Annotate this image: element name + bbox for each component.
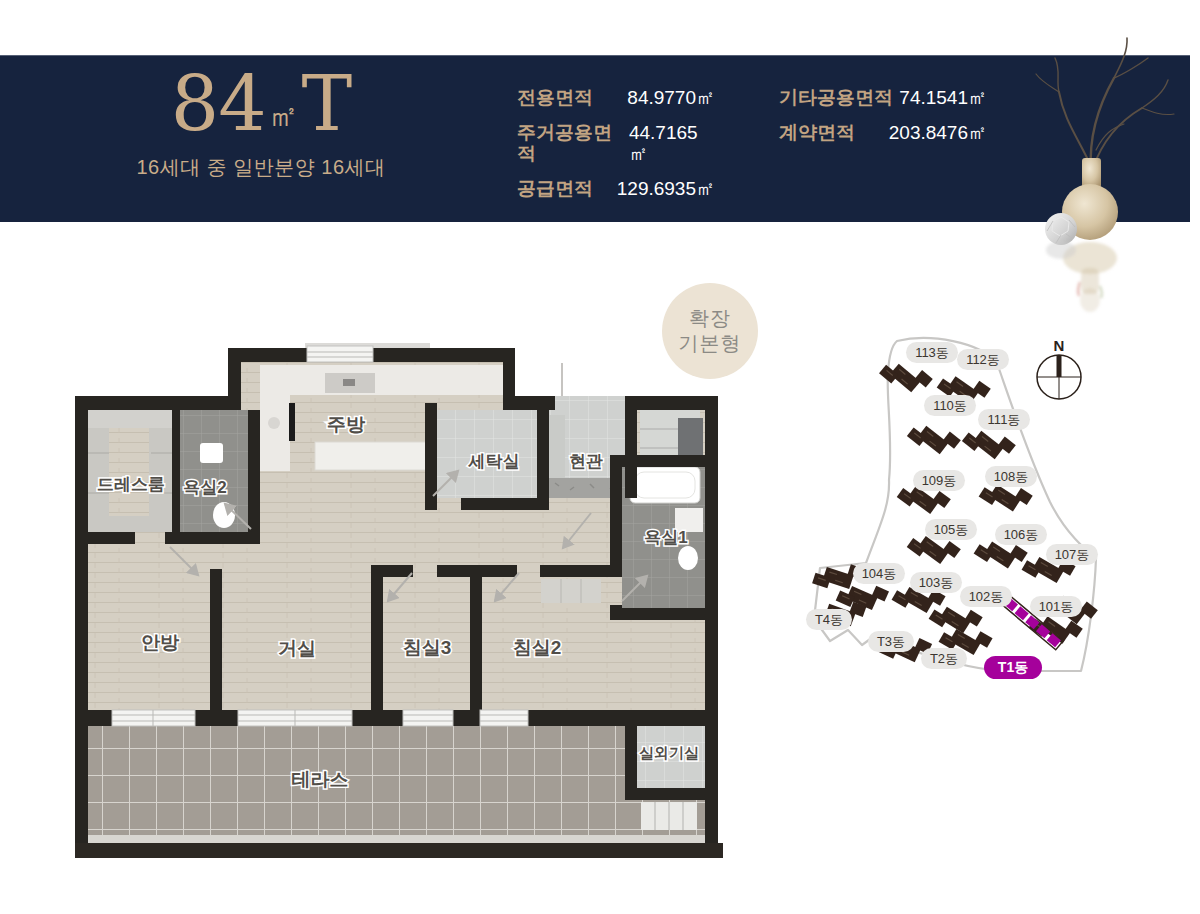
room-label-kitchen: 주방 <box>327 414 366 435</box>
area-row: 공급면적 129.6935㎡ <box>517 178 715 199</box>
svg-text:104동: 104동 <box>862 566 897 581</box>
terrace-floor <box>88 726 705 837</box>
room-label-bath2: 욕실2 <box>183 478 226 497</box>
sink-icon <box>200 443 223 463</box>
building-label: 104동 <box>853 563 905 584</box>
area-row: 주거공용면적 44.7165㎡ <box>517 122 715 164</box>
area-value: 84.9770㎡ <box>627 87 715 108</box>
building-label: 106동 <box>995 524 1047 545</box>
area-table-col1: 전용면적 84.9770㎡ 주거공용면적 44.7165㎡ 공급면적 129.6… <box>517 87 715 199</box>
room-label-living-room: 거실 <box>278 638 316 659</box>
building-label: 113동 <box>906 342 958 363</box>
svg-text:109동: 109동 <box>922 473 957 488</box>
area-table: 전용면적 84.9770㎡ 주거공용면적 44.7165㎡ 공급면적 129.6… <box>517 87 987 199</box>
building-label: T3동 <box>868 631 914 652</box>
toilet-icon <box>213 502 235 528</box>
badge-line1: 확장 <box>689 306 731 331</box>
building-label: 107동 <box>1046 544 1098 565</box>
room-label-terrace: 테라스 <box>292 769 349 790</box>
room-label-bedroom3: 침실3 <box>403 637 452 658</box>
building-label: 110동 <box>924 395 976 416</box>
svg-text:107동: 107동 <box>1055 547 1090 562</box>
unit-subtitle: 16세대 중 일반분양 16세대 <box>96 154 426 181</box>
building-label: 102동 <box>960 586 1012 607</box>
vase-decoration <box>1030 18 1200 318</box>
unit-title: 84㎡T <box>96 64 426 144</box>
bath2-area <box>180 410 248 532</box>
oven-icon <box>289 403 295 441</box>
area-value: 129.6935㎡ <box>617 178 715 199</box>
area-value: 74.1541㎡ <box>899 87 987 108</box>
building-label: 111동 <box>978 409 1030 430</box>
compass-icon: N <box>1037 337 1081 399</box>
area-value: 44.7165㎡ <box>629 122 715 164</box>
building-label: 109동 <box>913 470 965 491</box>
unit-title-number: 84 <box>171 59 266 148</box>
building-label: 103동 <box>910 572 962 593</box>
svg-text:111동: 111동 <box>988 412 1021 427</box>
svg-text:106동: 106동 <box>1004 527 1039 542</box>
area-label: 전용면적 <box>517 87 593 108</box>
bottom-wall <box>75 843 723 858</box>
area-row: 기타공용면적 74.1541㎡ <box>779 87 987 108</box>
area-row: 계약면적 203.8476㎡ <box>779 122 987 143</box>
room-label-dress-room: 드레스룸 <box>97 475 165 494</box>
area-table-col2: 기타공용면적 74.1541㎡ 계약면적 203.8476㎡ <box>779 87 987 199</box>
area-label: 기타공용면적 <box>779 87 893 108</box>
shoe-closet-icon <box>549 415 565 485</box>
area-label: 공급면적 <box>517 178 593 199</box>
building-label: 105동 <box>925 519 977 540</box>
svg-text:102동: 102동 <box>969 589 1004 604</box>
svg-text:T1동: T1동 <box>998 659 1028 675</box>
floor-plan: 주방 드레스룸 욕실2 세탁실 현관 욕실1 안방 거실 침실3 침실2 실외기… <box>75 343 723 861</box>
building-label-highlighted: T1동 <box>984 656 1042 679</box>
building-label: T4동 <box>806 609 852 630</box>
header-band: 84㎡T 16세대 중 일반분양 16세대 전용면적 84.9770㎡ 주거공용… <box>0 55 1190 222</box>
svg-text:112동: 112동 <box>966 352 1000 367</box>
svg-text:T2동: T2동 <box>930 651 958 666</box>
outdoor-unit-area <box>637 726 705 830</box>
building-label: 112동 <box>957 349 1009 370</box>
svg-text:103동: 103동 <box>919 575 954 590</box>
terrace-edge <box>88 835 705 843</box>
svg-text:108동: 108동 <box>994 469 1029 484</box>
unit-title-unit: ㎡ <box>269 98 299 133</box>
bedroom2-closet <box>541 579 601 603</box>
svg-text:105동: 105동 <box>934 522 969 537</box>
room-label-entrance: 현관 <box>569 452 603 471</box>
svg-text:T3동: T3동 <box>877 634 905 649</box>
site-plan: 113동 112동 110동 111동 109동 108동 105동 106동 … <box>795 330 1115 685</box>
vase-reflection <box>1046 241 1117 312</box>
building-label: 108동 <box>985 466 1037 487</box>
svg-text:T4동: T4동 <box>815 612 843 627</box>
dress-room-area <box>88 410 172 532</box>
svg-text:113동: 113동 <box>915 345 949 360</box>
area-label: 주거공용면적 <box>517 122 629 164</box>
room-label-bath1: 욕실1 <box>644 528 687 547</box>
compass-north-label: N <box>1054 337 1065 354</box>
room-label-outdoor-unit: 실외기실 <box>639 744 699 761</box>
building-label: 101동 <box>1030 596 1082 617</box>
room-label-bedroom2: 침실2 <box>513 637 562 658</box>
toilet-icon <box>678 546 698 570</box>
unit-title-type: T <box>302 59 352 148</box>
room-label-laundry: 세탁실 <box>468 452 520 471</box>
area-row: 전용면적 84.9770㎡ <box>517 87 715 108</box>
sphere-ornament-icon <box>1045 213 1077 245</box>
area-value: 203.8476㎡ <box>889 122 987 143</box>
page: { "header": { "title_number": "84", "tit… <box>0 0 1200 914</box>
branches-icon <box>1036 38 1174 170</box>
room-label-master-bedroom: 안방 <box>141 632 180 653</box>
building-label: T2동 <box>921 648 967 669</box>
area-label: 계약면적 <box>779 122 855 143</box>
svg-text:110동: 110동 <box>933 398 967 413</box>
unit-title-block: 84㎡T 16세대 중 일반분양 16세대 <box>96 64 426 181</box>
svg-text:101동: 101동 <box>1039 599 1074 614</box>
